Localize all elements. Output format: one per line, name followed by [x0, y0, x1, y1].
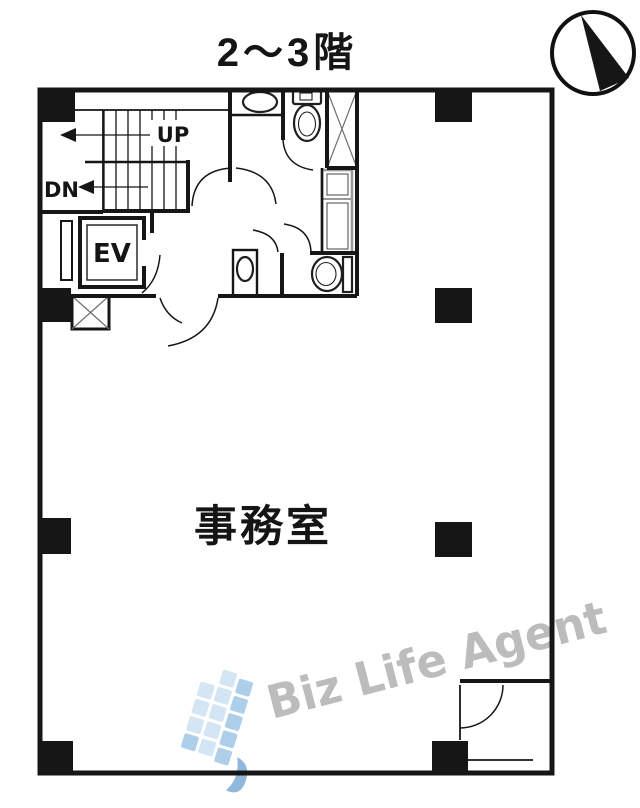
page-title: 2～3階 [217, 31, 358, 75]
logo-tile [191, 698, 210, 717]
stairs-down-label: DN [44, 178, 79, 202]
logo-swoosh [226, 757, 252, 795]
duct [61, 221, 72, 280]
floor-plan: Biz Life Agent [0, 0, 640, 808]
toilet2-tank-icon [343, 257, 352, 292]
logo-tile [214, 747, 233, 766]
elevator-label: EV [93, 239, 131, 269]
logo-tile [219, 730, 238, 749]
logo-tile [235, 678, 254, 697]
stairs-up-label: UP [157, 123, 189, 147]
sink-icon [243, 92, 277, 112]
small-sink-icon [237, 257, 253, 281]
floor-plan-page: Biz Life Agent [0, 0, 640, 808]
logo-tile [208, 704, 227, 723]
biz-life-agent-logo-icon [172, 664, 275, 795]
logo-tile [196, 681, 215, 700]
elevator-door-opening [142, 240, 148, 266]
core-walls [40, 90, 552, 681]
logo-tile [203, 721, 222, 740]
logo-tile [214, 686, 233, 705]
logo-tile [198, 738, 217, 757]
logo-tile [219, 669, 238, 688]
logo-tile [186, 716, 205, 735]
logo-tile [230, 696, 249, 715]
logo-tile [181, 733, 200, 752]
watermark: Biz Life Agent [172, 590, 611, 795]
watermark-text: Biz Life Agent [261, 590, 611, 729]
logo-tile [224, 713, 243, 732]
north-arrow-icon [552, 12, 634, 94]
office-room-label: 事務室 [194, 503, 332, 551]
